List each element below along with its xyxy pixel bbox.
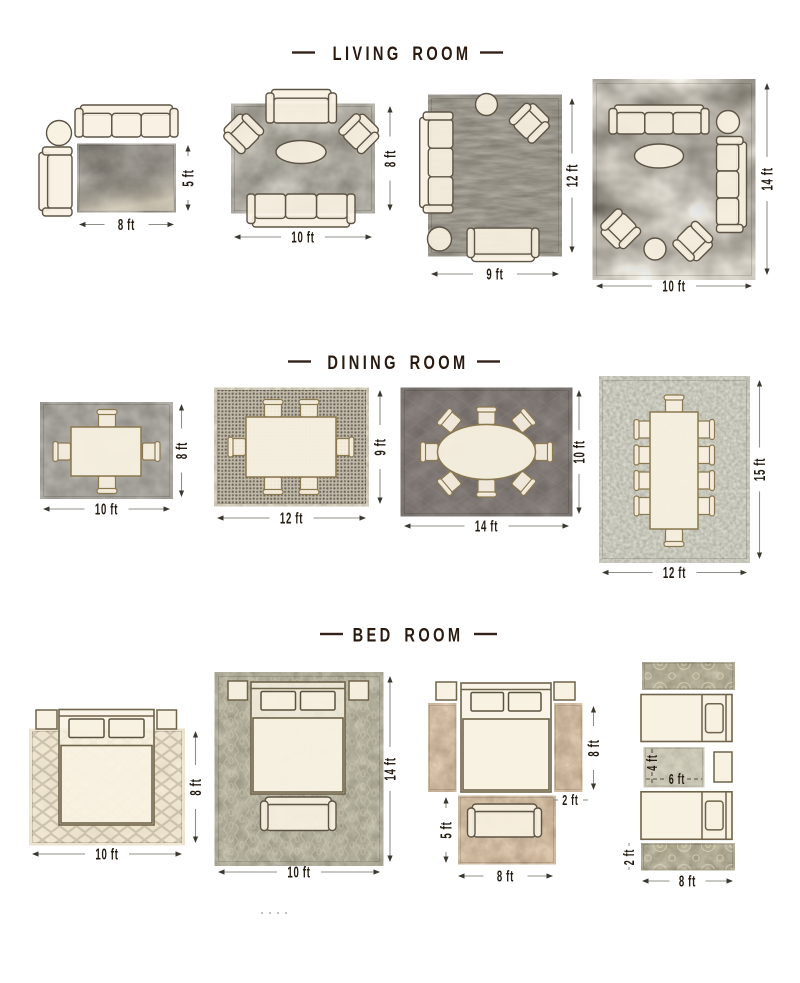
svg-text:10 ft: 10 ft — [95, 845, 118, 863]
svg-text:10 ft: 10 ft — [662, 277, 685, 295]
svg-text:9 ft: 9 ft — [371, 438, 389, 455]
svg-text:8 ft: 8 ft — [172, 442, 190, 459]
svg-text:BED ROOM: BED ROOM — [353, 623, 464, 646]
svg-text:2 ft: 2 ft — [621, 849, 638, 865]
svg-text:10 ft: 10 ft — [287, 863, 310, 881]
svg-text:12 ft: 12 ft — [280, 509, 303, 527]
svg-text:10 ft: 10 ft — [570, 440, 588, 463]
svg-text:8 ft: 8 ft — [584, 739, 602, 756]
svg-text:14 ft: 14 ft — [381, 757, 399, 780]
svg-text:2 ft: 2 ft — [562, 792, 578, 809]
svg-text:14 ft: 14 ft — [758, 167, 776, 190]
svg-text:5 ft: 5 ft — [179, 169, 197, 186]
svg-text:LIVING ROOM: LIVING ROOM — [333, 42, 472, 65]
svg-text:8 ft: 8 ft — [497, 867, 514, 885]
svg-text:5 ft: 5 ft — [437, 821, 455, 838]
svg-text:12 ft: 12 ft — [663, 563, 686, 581]
svg-text:6 ft: 6 ft — [669, 771, 685, 788]
svg-text:10 ft: 10 ft — [95, 500, 118, 518]
svg-text:8 ft: 8 ft — [381, 150, 399, 167]
svg-text:8 ft: 8 ft — [679, 872, 696, 890]
svg-text:12 ft: 12 ft — [563, 164, 581, 187]
svg-text:9 ft: 9 ft — [486, 265, 503, 283]
svg-text:4 ft: 4 ft — [644, 754, 661, 770]
svg-text:8 ft: 8 ft — [118, 215, 135, 233]
svg-text:10 ft: 10 ft — [291, 228, 314, 246]
svg-text:DINING ROOM: DINING ROOM — [327, 351, 468, 374]
svg-text:8 ft: 8 ft — [186, 778, 204, 795]
svg-text:14 ft: 14 ft — [475, 517, 498, 535]
svg-text:15 ft: 15 ft — [750, 458, 768, 481]
